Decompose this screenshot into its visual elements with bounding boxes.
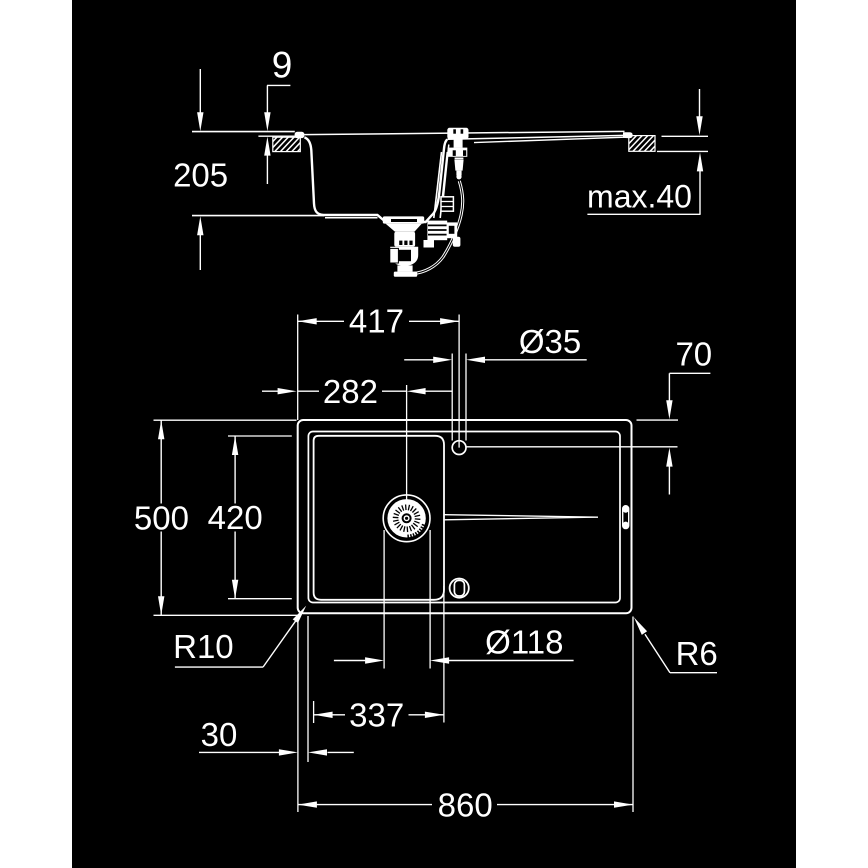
svg-text:860: 860 (438, 787, 493, 824)
svg-text:420: 420 (208, 499, 263, 536)
svg-text:30: 30 (201, 716, 238, 753)
svg-text:500: 500 (134, 499, 189, 536)
svg-text:70: 70 (675, 335, 712, 372)
svg-text:Ø118: Ø118 (485, 623, 563, 660)
svg-text:R10: R10 (173, 628, 234, 665)
svg-text:337: 337 (349, 697, 404, 734)
svg-text:205: 205 (173, 157, 228, 194)
svg-text:9: 9 (272, 44, 293, 85)
svg-text:282: 282 (323, 373, 378, 410)
svg-text:Ø35: Ø35 (519, 323, 581, 360)
svg-text:max.40: max.40 (587, 179, 692, 215)
svg-text:R6: R6 (676, 635, 718, 672)
svg-text:417: 417 (349, 302, 404, 339)
